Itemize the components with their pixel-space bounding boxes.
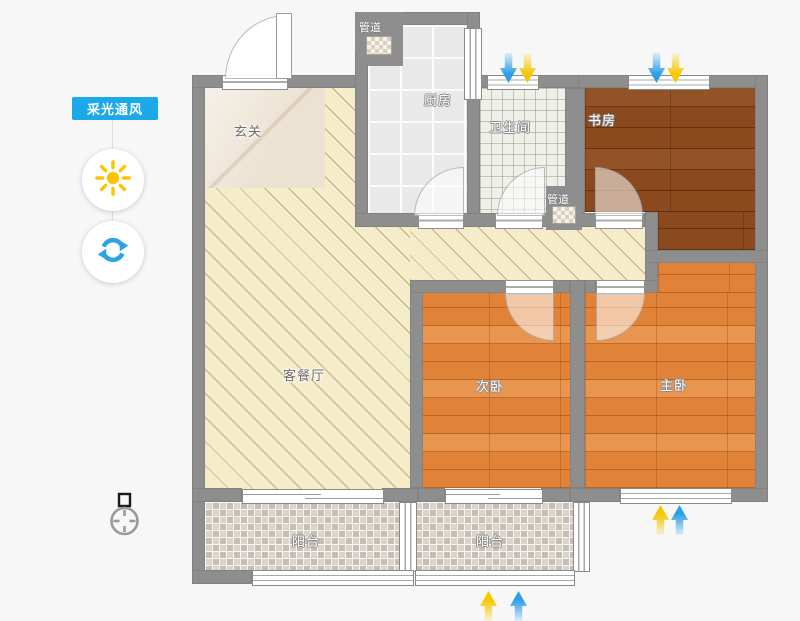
wall bbox=[418, 488, 445, 502]
wall bbox=[755, 75, 768, 502]
room-label-second-bedroom: 次卧 bbox=[476, 376, 504, 395]
master-bedroom-floor-upper bbox=[658, 263, 755, 293]
balcony-right-side-window bbox=[573, 502, 590, 572]
room-label-balcony-left: 阳台 bbox=[292, 531, 320, 550]
study-window bbox=[628, 75, 710, 90]
wall bbox=[410, 280, 423, 488]
duct-shaft bbox=[366, 36, 392, 55]
lighting-ventilation-badge[interactable]: 采光通风 bbox=[72, 97, 158, 120]
wall bbox=[541, 488, 570, 502]
sun-button[interactable] bbox=[82, 149, 144, 211]
refresh-button[interactable] bbox=[82, 221, 144, 283]
room-label-entry: 玄关 bbox=[234, 121, 262, 140]
wall bbox=[382, 488, 418, 502]
wall bbox=[570, 488, 620, 502]
ventilation-arrow-icon bbox=[510, 591, 527, 621]
room-label-living-dining: 客餐厅 bbox=[283, 365, 325, 384]
daylight-arrow-icon bbox=[652, 505, 669, 535]
room-label-bathroom: 卫生间 bbox=[489, 117, 531, 136]
compass-north-icon bbox=[103, 492, 147, 547]
refresh-icon bbox=[95, 232, 131, 273]
balcony-left-window bbox=[252, 570, 414, 586]
balcony-divider-window bbox=[399, 502, 417, 572]
wall bbox=[192, 75, 205, 584]
room-label-balcony-right: 阳台 bbox=[476, 531, 504, 550]
floorplan-viewer: { "legend": { "badge_label": "采光通风" }, "… bbox=[0, 0, 800, 600]
duct-shaft bbox=[552, 206, 576, 224]
wall bbox=[192, 488, 242, 502]
living-balcony-sliding-door bbox=[242, 489, 384, 504]
master-bedroom-window bbox=[620, 488, 732, 504]
balcony-right-window bbox=[415, 570, 575, 586]
entry-floor bbox=[205, 88, 325, 188]
wall bbox=[730, 488, 768, 502]
wall bbox=[192, 570, 252, 584]
room-label-master-bedroom: 主卧 bbox=[660, 375, 688, 394]
study-floor-lower bbox=[658, 212, 755, 250]
bathroom-window bbox=[487, 75, 539, 90]
kitchen-window bbox=[464, 28, 482, 100]
room-label-study: 书房 bbox=[588, 110, 616, 129]
wall bbox=[570, 280, 585, 488]
wall bbox=[585, 280, 596, 293]
duct-label-kitchen: 管道 bbox=[359, 19, 381, 35]
room-label-kitchen: 厨房 bbox=[424, 90, 452, 109]
sun-icon bbox=[94, 159, 132, 202]
ventilation-arrow-icon bbox=[671, 505, 688, 535]
duct-label-hall: 管道 bbox=[547, 191, 569, 207]
daylight-arrow-icon bbox=[480, 591, 497, 621]
wall bbox=[645, 250, 768, 263]
hallway-floor bbox=[410, 227, 645, 280]
entry-door-leaf bbox=[276, 13, 292, 79]
wall bbox=[643, 280, 658, 293]
bedroom-balcony-sliding-door bbox=[445, 489, 543, 504]
wall bbox=[192, 75, 225, 88]
